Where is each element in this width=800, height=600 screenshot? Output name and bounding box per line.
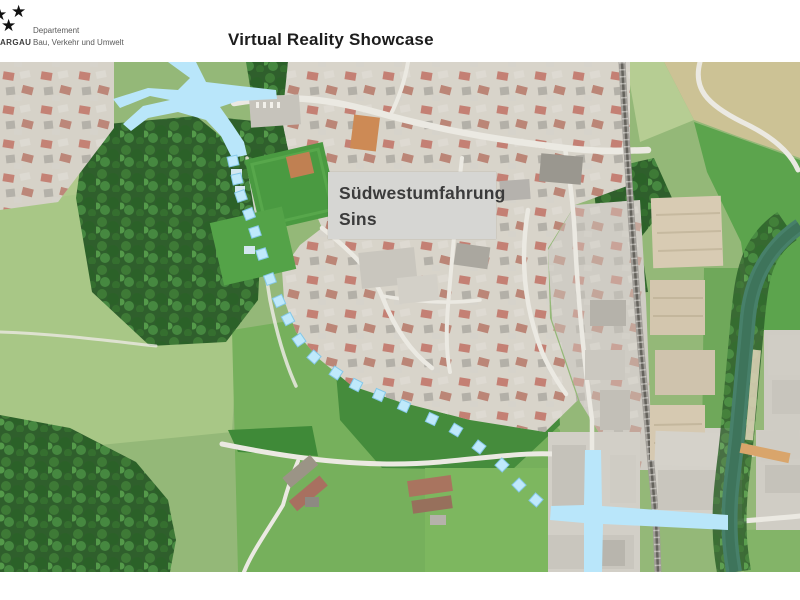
aerial-map[interactable] xyxy=(0,62,800,572)
project-label-box[interactable]: Südwestumfahrung Sins xyxy=(328,172,496,239)
logo-brand-text: ARGAU xyxy=(0,38,31,47)
department-line1: Departement xyxy=(33,25,124,37)
aargau-star-icon: ★ xyxy=(1,17,16,34)
project-label-line2: Sins xyxy=(339,206,496,232)
bottom-whitespace xyxy=(0,572,800,600)
page-title: Virtual Reality Showcase xyxy=(228,30,434,50)
project-label-line1: Südwestumfahrung xyxy=(339,180,496,206)
department-line2: Bau, Verkehr und Umwelt xyxy=(33,37,124,49)
department-name: Departement Bau, Verkehr und Umwelt xyxy=(33,25,124,49)
page-header: ★ ★ ★ ARGAU Departement Bau, Verkehr und… xyxy=(0,0,800,62)
